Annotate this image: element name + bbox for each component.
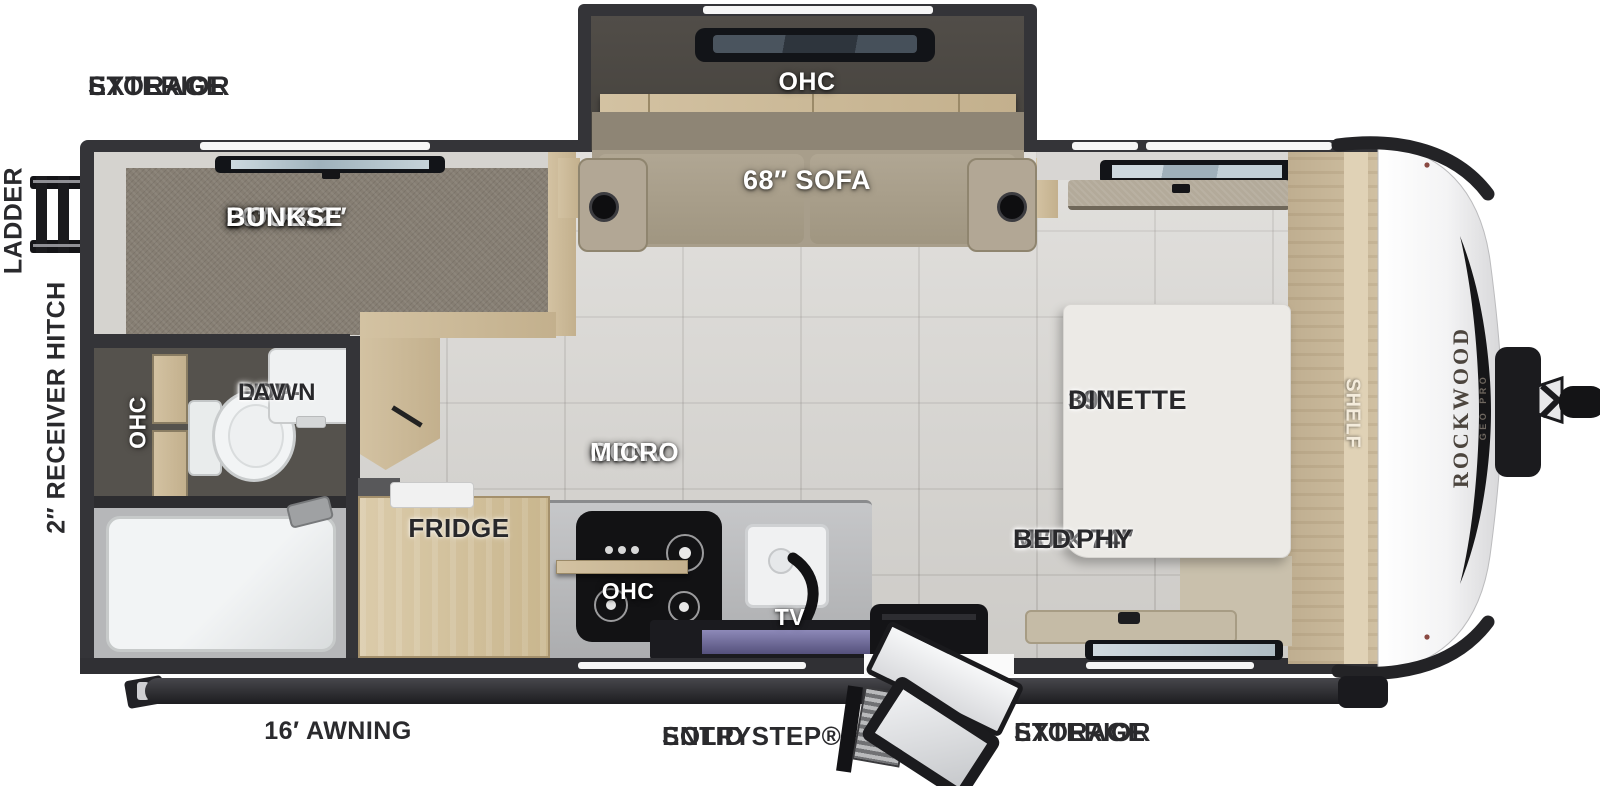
awning-tube (145, 678, 1352, 704)
ladder-rung (58, 176, 69, 253)
slideout-window (695, 28, 935, 62)
cap-rivet (1424, 634, 1429, 639)
bolster-latch (1118, 612, 1140, 624)
window-glass (231, 160, 429, 169)
burner-center (679, 547, 691, 559)
label-line: BED (1013, 524, 1072, 554)
label-line: BUNKS (226, 203, 325, 232)
receiver-hitch-label: 2″ RECEIVER HITCH (43, 268, 72, 548)
cap-rivet (1424, 162, 1429, 167)
ladder-rung (36, 176, 47, 253)
bath-ohc-cabinet (152, 354, 188, 424)
sofa-ohc-label: OHC (757, 68, 857, 97)
label-line: LAV (238, 377, 286, 408)
counter-base-glass (702, 630, 870, 654)
shelf-seam (958, 94, 960, 112)
lav-handle (296, 416, 326, 428)
label-line: MICRO (590, 438, 679, 466)
shelf-seam (648, 94, 650, 112)
exterior-compartment-marker (1086, 662, 1254, 669)
cooktop-knob (618, 546, 626, 554)
shelf-label: SHELF (1341, 354, 1364, 474)
burner-center (679, 602, 689, 612)
propane-tank (1495, 347, 1541, 477)
cooktop-knob (631, 546, 639, 554)
hitch-coupler (1559, 386, 1600, 418)
bath-ohc-label: OHC (125, 373, 152, 473)
exterior-window-marker (1072, 142, 1138, 150)
awning-roller-end (1338, 676, 1388, 708)
cupholder-icon (589, 192, 619, 222)
cooktop-knob (605, 546, 613, 554)
stored-step-ridge (882, 614, 976, 620)
label-line: DINETTE (1068, 385, 1187, 416)
tub (106, 516, 336, 652)
awning-label: 16′ AWNING (238, 717, 438, 746)
bath-bunk-wall (88, 334, 350, 348)
label-line: STORAGE (88, 72, 225, 101)
headrest-latch (1172, 184, 1190, 193)
brand-sub-logo: GEO PRO (1478, 327, 1488, 487)
sofa-label: 68″ SOFA (693, 165, 921, 196)
exterior-compartment-marker (578, 662, 806, 669)
fridge-label: FRIDGE (394, 513, 524, 544)
entry-steps-icon (836, 680, 1026, 786)
exterior-window-marker (200, 142, 430, 150)
window-latch (322, 170, 340, 179)
exterior-window-marker (1146, 142, 1332, 150)
sofa-side-table (558, 158, 580, 218)
window-glass (1112, 165, 1282, 178)
dinette-table (1063, 304, 1291, 558)
tv-label: TV (760, 604, 820, 631)
ladder-label: LADDER (0, 121, 29, 321)
slideout-window-marker (703, 6, 933, 14)
rv-floorplan: EXTERIOR STORAGE LADDER 2″ RECEIVER HITC… (0, 0, 1600, 786)
cupholder-icon (997, 192, 1027, 222)
brand-logo: ROCKWOOD (1448, 277, 1474, 537)
window-glass (1093, 644, 1275, 656)
fridge-top-tray (390, 482, 474, 508)
label-line: STORAGE (1014, 719, 1146, 746)
kitchen-ohc-shelf (556, 560, 688, 574)
window-glass (713, 35, 917, 53)
bunk-mattress (126, 168, 556, 335)
murphy-window (1085, 640, 1283, 660)
kitchen-ohc-label: OHC (588, 578, 668, 605)
bunk-base-step (360, 312, 556, 338)
label-line: ENTRY (662, 721, 752, 751)
bath-ohc-cabinet (152, 430, 188, 500)
